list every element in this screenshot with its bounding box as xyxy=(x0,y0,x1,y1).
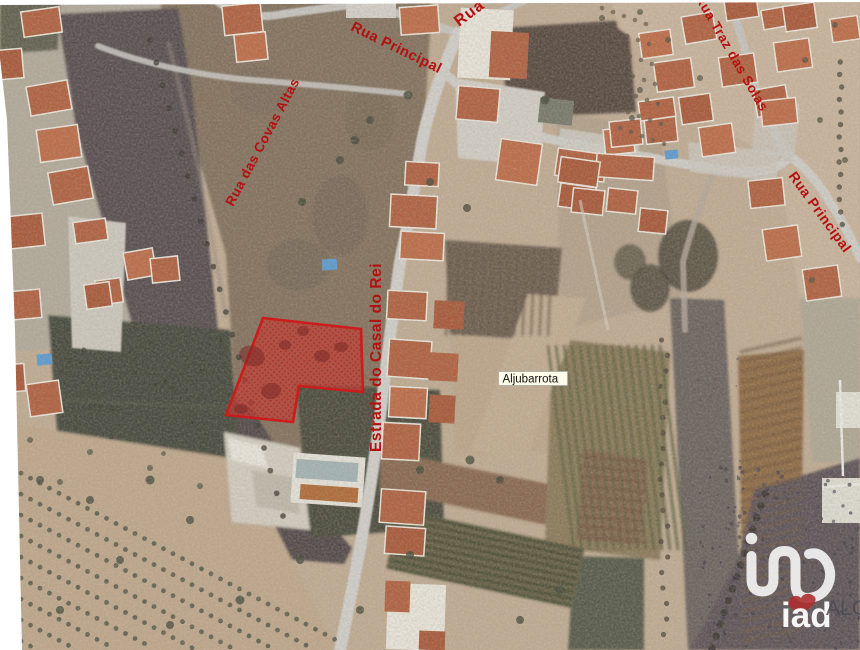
svg-text:iad: iad xyxy=(781,596,832,635)
svg-text:Aljubarrota: Aljubarrota xyxy=(503,374,559,386)
svg-text:Estrada do Casal do Rei: Estrada do Casal do Rei xyxy=(368,263,385,452)
svg-text:ALC: ALC xyxy=(826,597,860,620)
